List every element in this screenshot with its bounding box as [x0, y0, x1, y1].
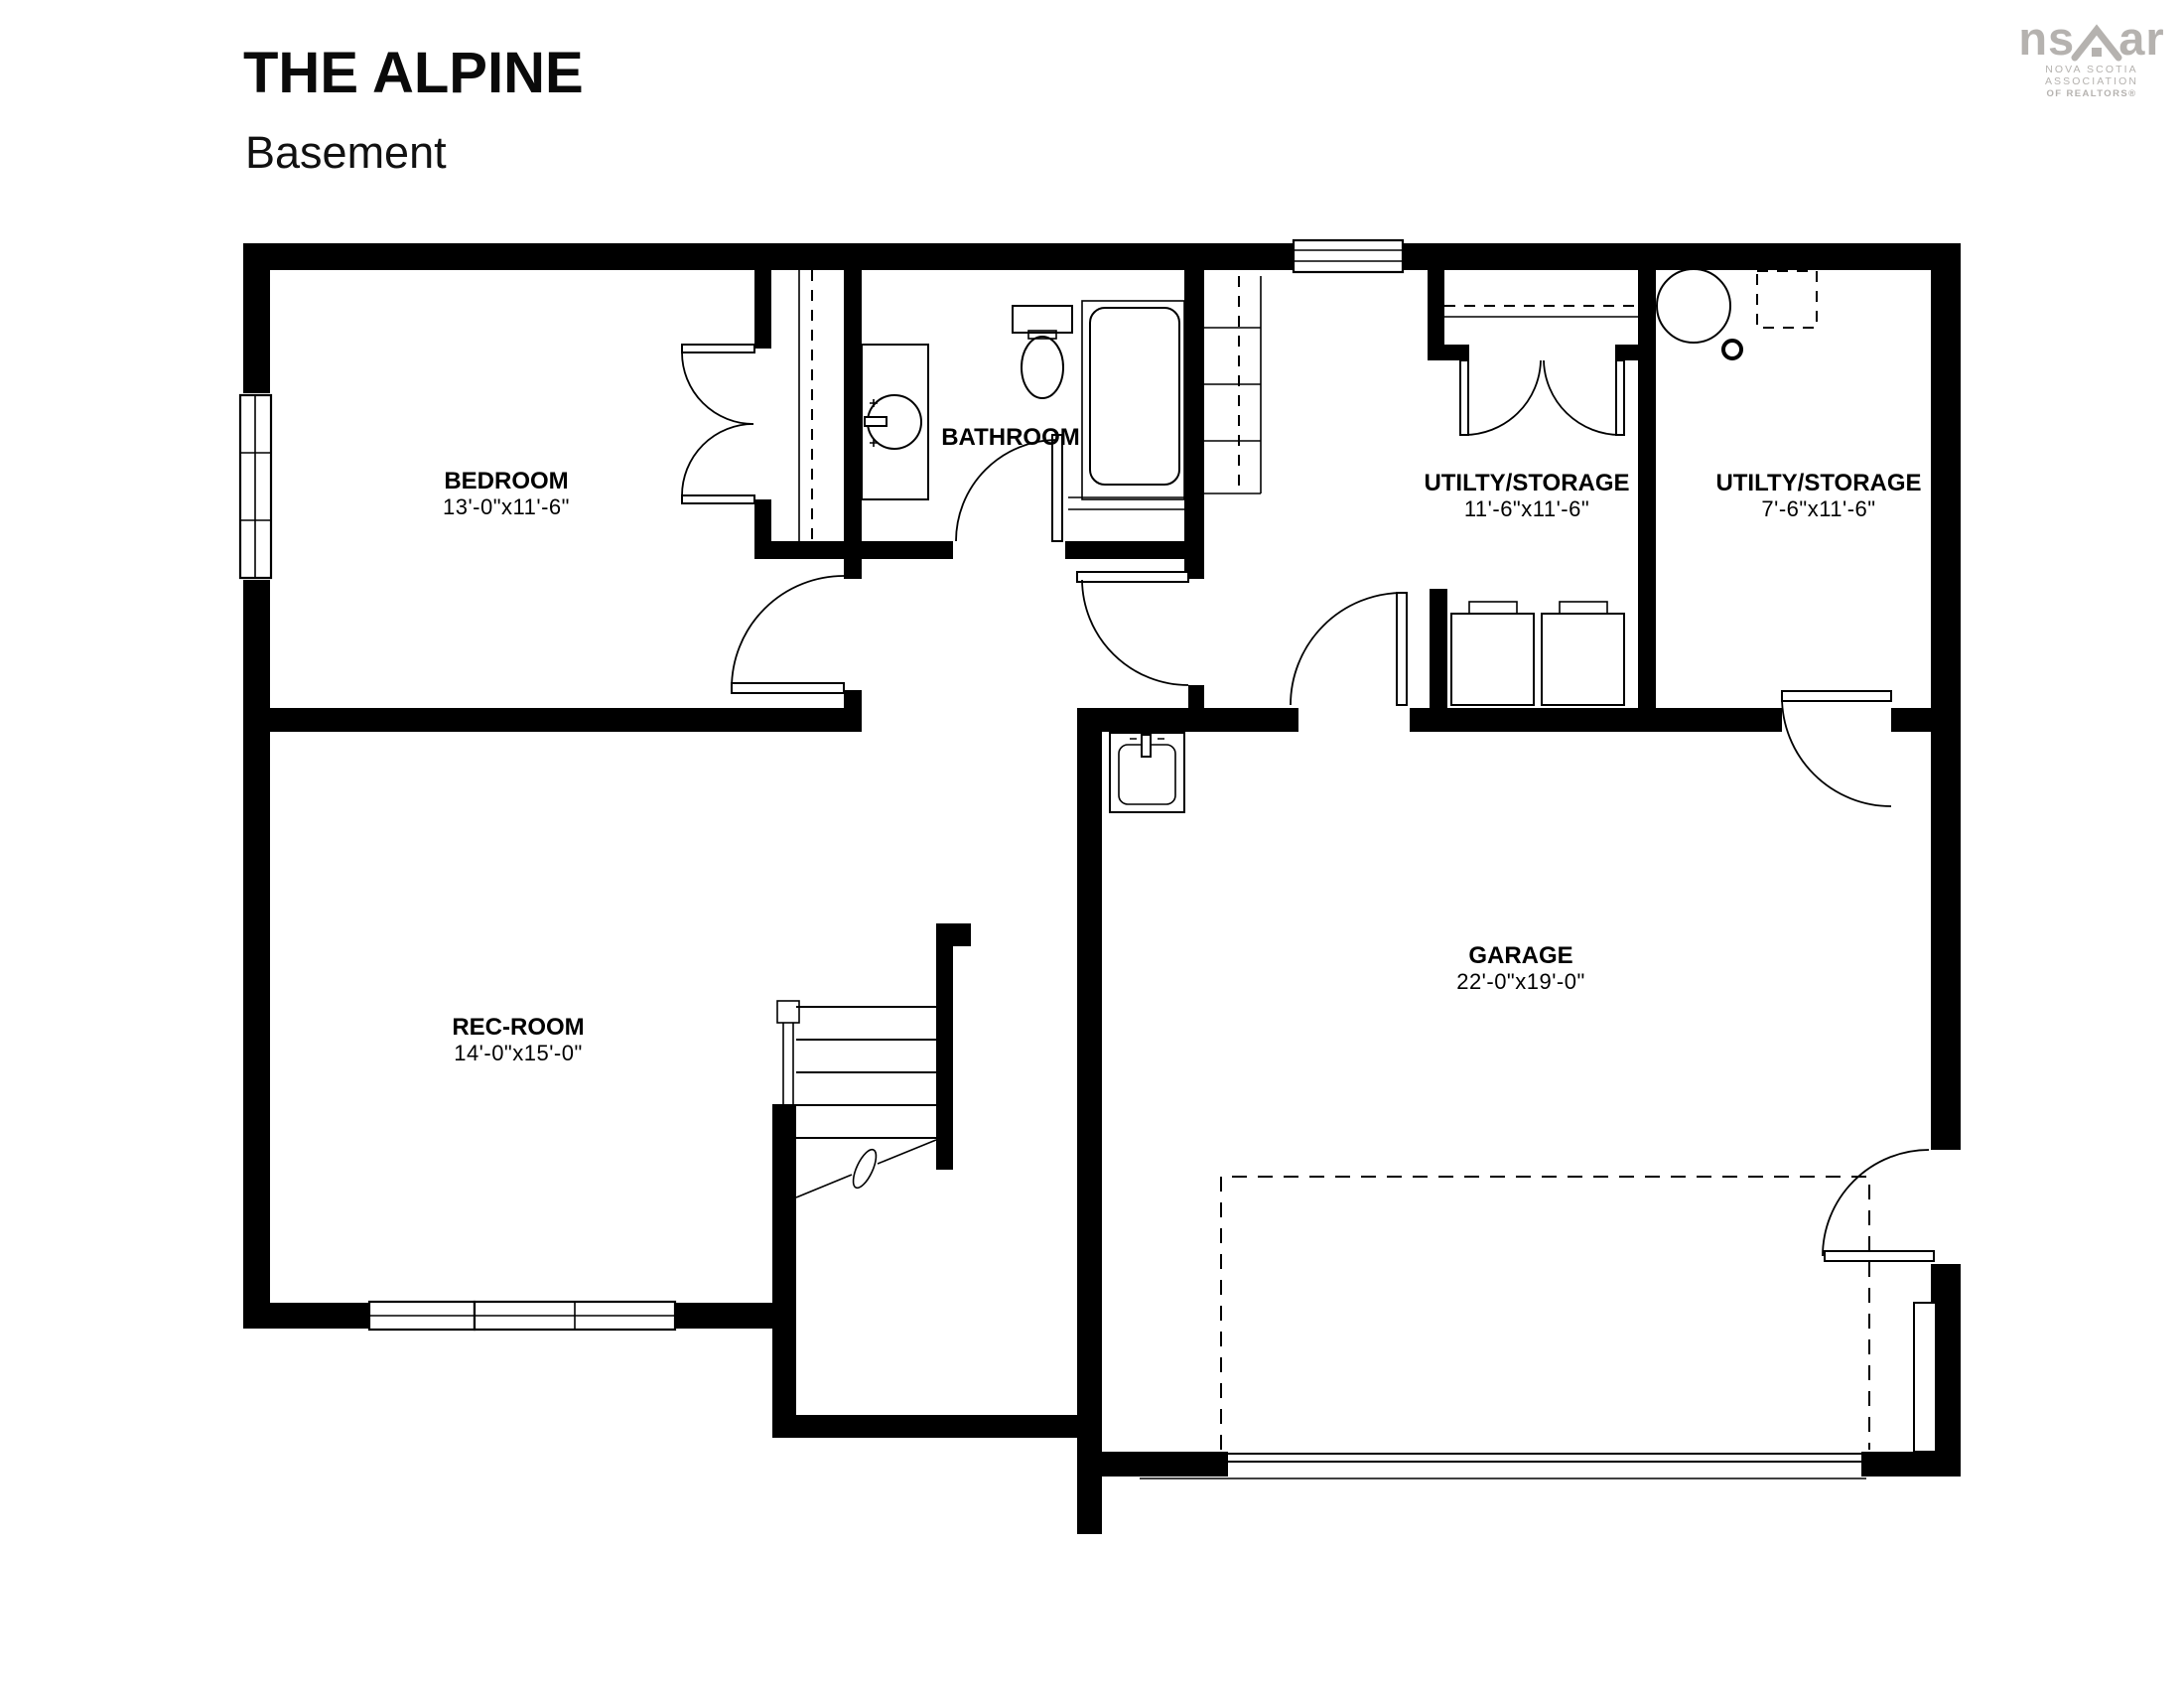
- room-label-recroom: REC-ROOM 14'-0"x15'-0": [452, 1014, 584, 1065]
- svg-text:11'-6"x11'-6": 11'-6"x11'-6": [1464, 496, 1589, 521]
- interior-walls: [270, 270, 1936, 1534]
- equipment-dashed-box: [1757, 271, 1817, 328]
- svg-text:BATHROOM: BATHROOM: [941, 424, 1080, 451]
- overhead-line: [1444, 306, 1638, 317]
- svg-text:GARAGE: GARAGE: [1468, 942, 1572, 969]
- room-labels: BEDROOM 13'-0"x11'-6" BATHROOM UTILTY/ST…: [443, 424, 1922, 1065]
- floor-drain-symbol: [1723, 341, 1741, 358]
- svg-text:UTILTY/STORAGE: UTILTY/STORAGE: [1715, 470, 1921, 496]
- svg-text:7'-6"x11'-6": 7'-6"x11'-6": [1761, 496, 1875, 521]
- laundry-sink-symbol: [1110, 733, 1184, 812]
- windows: [240, 240, 1403, 1330]
- recroom-window-1: [369, 1302, 475, 1330]
- garage-elements: [1140, 1177, 1936, 1478]
- closet-double-door: [682, 345, 754, 503]
- washer-symbol: [1451, 602, 1534, 705]
- closet-rod: [799, 270, 812, 541]
- stairs-symbol: [777, 276, 1638, 1197]
- room-label-bathroom: BATHROOM: [941, 424, 1080, 451]
- garage-side-door: [1823, 1150, 1934, 1261]
- garage-door-symbol: [1140, 1454, 1866, 1478]
- room-label-utility1: UTILTY/STORAGE 11'-6"x11'-6": [1424, 470, 1629, 521]
- bathroom-door: [956, 435, 1062, 541]
- front-window: [1294, 240, 1403, 272]
- utility-double-door: [1460, 360, 1624, 435]
- svg-text:13'-0"x11'-6": 13'-0"x11'-6": [443, 494, 570, 519]
- bedroom-door: [732, 576, 844, 693]
- svg-text:REC-ROOM: REC-ROOM: [452, 1014, 584, 1041]
- svg-text:22'-0"x19'-0": 22'-0"x19'-0": [1456, 969, 1585, 994]
- svg-text:BEDROOM: BEDROOM: [444, 468, 568, 494]
- wall-recess: [1914, 1303, 1936, 1452]
- stairs-above-dashed: [1204, 276, 1261, 493]
- water-tank-symbol: [1657, 269, 1730, 343]
- bedroom-side-window: [240, 395, 271, 578]
- svg-text:UTILTY/STORAGE: UTILTY/STORAGE: [1424, 470, 1629, 496]
- floor-plan-page: THE ALPINE Basement ns ar NOVA SCOTIA AS…: [0, 0, 2184, 1688]
- dryer-symbol: [1542, 602, 1624, 705]
- bathtub-symbol: [1068, 301, 1184, 509]
- toilet-symbol: [1013, 306, 1072, 398]
- room-label-bedroom: BEDROOM 13'-0"x11'-6": [443, 468, 570, 519]
- parking-stall-dashed: [1221, 1177, 1869, 1450]
- svg-text:14'-0"x15'-0": 14'-0"x15'-0": [454, 1041, 583, 1065]
- room-label-garage: GARAGE 22'-0"x19'-0": [1456, 942, 1585, 994]
- floor-plan-drawing: BEDROOM 13'-0"x11'-6" BATHROOM UTILTY/ST…: [0, 0, 2184, 1688]
- recroom-window-2: [475, 1302, 675, 1330]
- utility2-door: [1782, 691, 1891, 806]
- room-label-utility2: UTILTY/STORAGE 7'-6"x11'-6": [1715, 470, 1921, 521]
- hall-door: [1077, 572, 1188, 685]
- stair-break-line: [796, 1140, 936, 1197]
- garage-entry-door: [1291, 593, 1407, 705]
- vanity-sink-symbol: [862, 345, 928, 499]
- stair-railing: [777, 1001, 799, 1104]
